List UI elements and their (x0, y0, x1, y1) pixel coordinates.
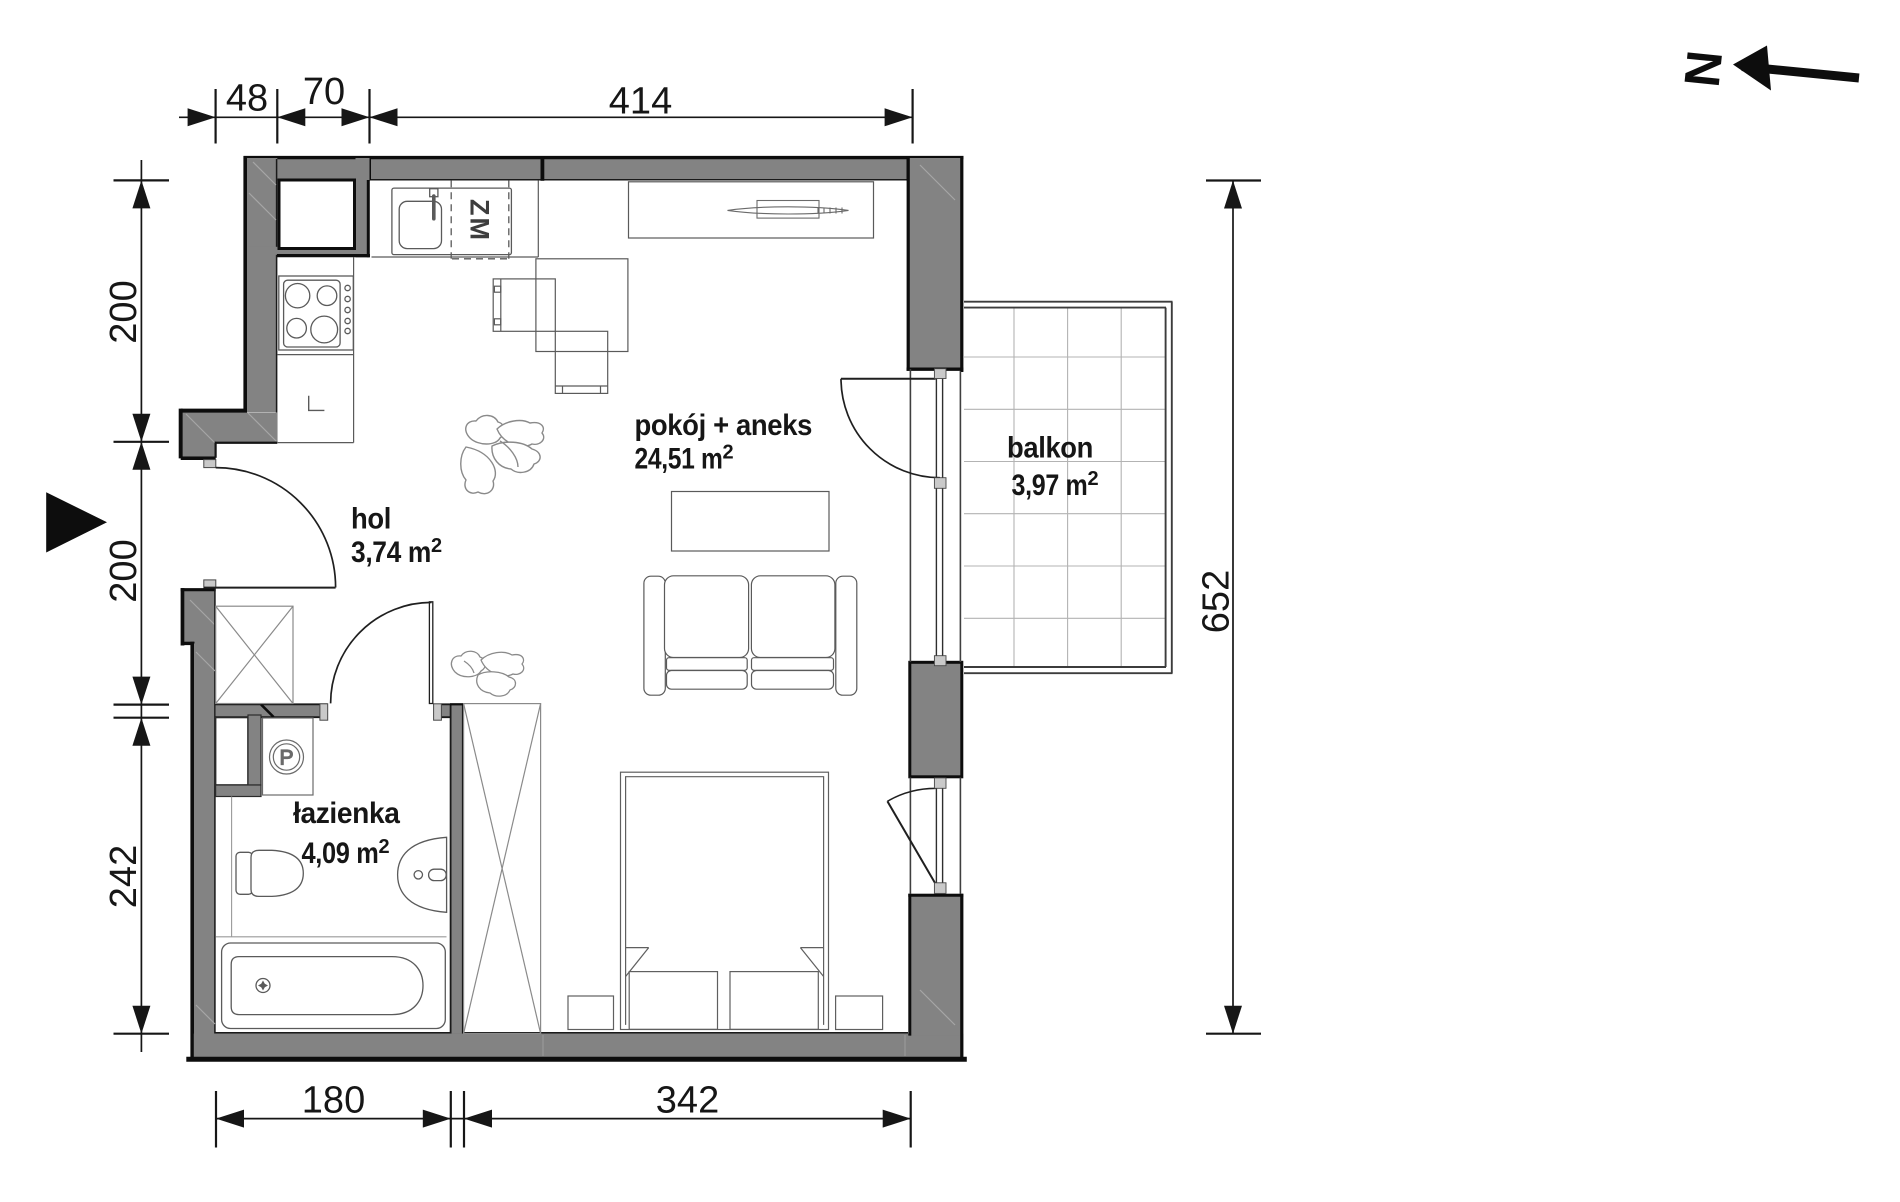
svg-text:24,51 m2: 24,51 m2 (635, 442, 734, 476)
svg-text:342: 342 (656, 1080, 719, 1122)
svg-text:hol: hol (351, 503, 391, 536)
svg-text:3,97 m2: 3,97 m2 (1012, 468, 1099, 502)
svg-text:48: 48 (226, 78, 268, 120)
svg-text:ZM: ZM (465, 199, 495, 242)
svg-text:3,74 m2: 3,74 m2 (351, 535, 442, 569)
svg-text:N: N (1673, 48, 1732, 90)
svg-text:P: P (279, 747, 293, 770)
svg-text:pokój + aneks: pokój + aneks (635, 409, 813, 442)
svg-text:180: 180 (302, 1080, 365, 1122)
svg-text:414: 414 (609, 81, 672, 123)
svg-text:70: 70 (303, 71, 345, 113)
svg-text:balkon: balkon (1007, 432, 1093, 465)
svg-text:242: 242 (103, 845, 145, 908)
svg-text:łazienka: łazienka (293, 797, 400, 830)
svg-text:4,09 m2: 4,09 m2 (302, 836, 390, 870)
svg-text:200: 200 (103, 539, 145, 602)
svg-text:200: 200 (103, 280, 145, 343)
svg-text:652: 652 (1196, 570, 1238, 633)
